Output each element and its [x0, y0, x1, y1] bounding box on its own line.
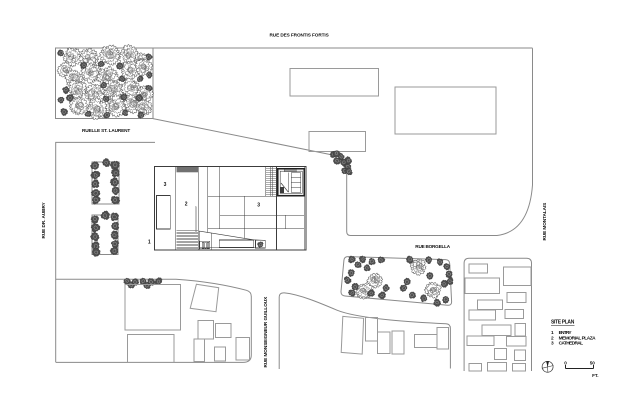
- svg-text:3: 3: [164, 182, 167, 188]
- svg-text:FT.: FT.: [592, 373, 598, 378]
- svg-text:50: 50: [590, 360, 596, 365]
- svg-text:RUELLE ST. LAURENT: RUELLE ST. LAURENT: [82, 128, 131, 133]
- svg-text:3: 3: [551, 341, 554, 347]
- svg-text:CATHEDRAL: CATHEDRAL: [559, 341, 584, 347]
- svg-text:RUE DES FRONTIS FORTIS: RUE DES FRONTIS FORTIS: [270, 33, 330, 38]
- svg-text:1: 1: [551, 330, 554, 336]
- svg-text:1: 1: [148, 239, 151, 245]
- svg-text:3: 3: [257, 202, 260, 208]
- svg-text:RUE MONTALAIS: RUE MONTALAIS: [542, 203, 547, 241]
- svg-text:2: 2: [185, 202, 188, 208]
- svg-text:RUE MONSEIGNEUR GUILLOUX: RUE MONSEIGNEUR GUILLOUX: [263, 296, 268, 368]
- svg-text:RUE DR. AUBRY: RUE DR. AUBRY: [41, 201, 46, 238]
- svg-text:0: 0: [564, 360, 567, 365]
- svg-text:2: 2: [551, 335, 554, 341]
- svg-text:ENTRY: ENTRY: [559, 330, 573, 336]
- svg-text:MEMORIAL PLAZA: MEMORIAL PLAZA: [559, 335, 597, 341]
- svg-text:RUE BORGELLA: RUE BORGELLA: [415, 244, 450, 249]
